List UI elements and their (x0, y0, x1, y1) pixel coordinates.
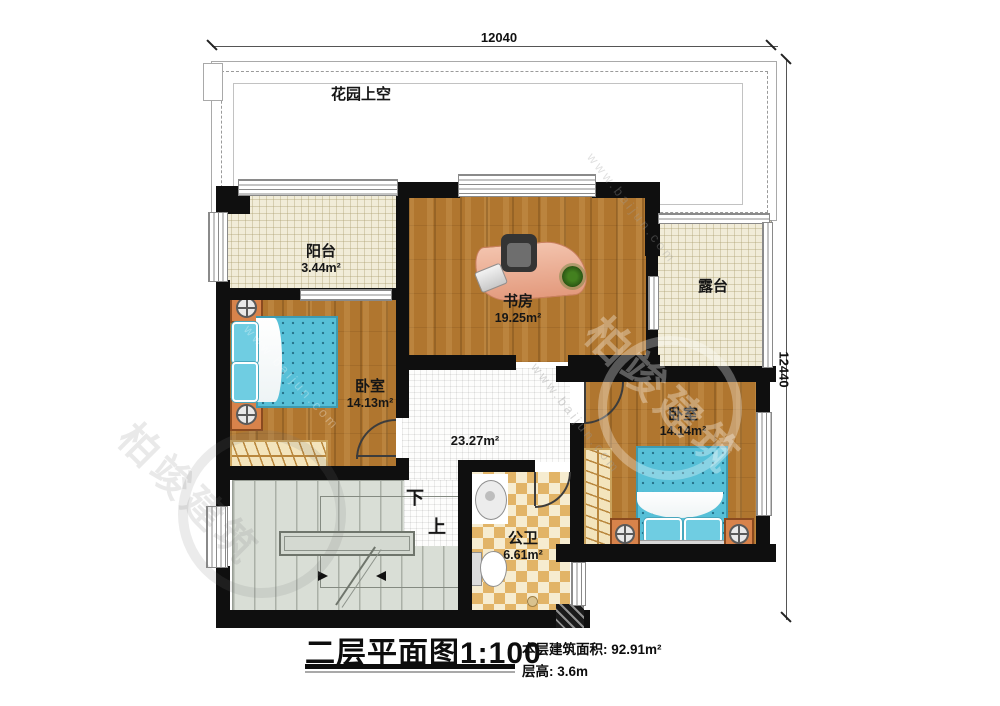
floor-height-label: 层高: 3.6m (522, 660, 588, 680)
stairs-down-label: 下 (402, 488, 428, 509)
door-leaf-bedroom-right (584, 382, 586, 422)
window-study-terrace-door (648, 276, 659, 330)
study-area-label: 19.25m² (473, 311, 563, 325)
bedroom-right-area-label: 14.14m² (640, 424, 726, 438)
bathroom-name-label: 公卫 (488, 530, 558, 547)
bathroom-area-label: 6.61m² (490, 548, 556, 562)
wall-segment (216, 466, 408, 480)
plant-icon (562, 266, 583, 287)
wall-segment (556, 544, 776, 562)
window-bathroom-right (571, 562, 586, 606)
stairs-landing-bar (279, 531, 415, 556)
wall-segment (396, 355, 516, 370)
dim-tick-icon (765, 39, 776, 50)
window-study-top (458, 174, 596, 197)
dimension-right-label: 12440 (777, 336, 792, 404)
stairs-up-label: 上 (424, 517, 450, 538)
dimension-top-label: 12040 (455, 30, 543, 45)
hall-floor-strip (402, 460, 458, 482)
terrace-name-label: 露台 (678, 278, 748, 295)
nightstand-knob-icon (615, 524, 635, 544)
bedroom-left-name-label: 卧室 (330, 378, 410, 395)
study-name-label: 书房 (473, 293, 563, 310)
nightstand-knob-icon (236, 297, 257, 318)
bedroom-right-name-label: 卧室 (645, 406, 721, 423)
wall-segment (756, 514, 770, 562)
window-bedroom-left-balcony (300, 289, 392, 301)
door-leaf-bedroom-left (356, 455, 396, 457)
garden-outline-notch (203, 63, 223, 101)
dimension-top-line (212, 46, 778, 47)
garden-label: 花园上空 (306, 86, 416, 103)
hall-area-label: 23.27m² (435, 434, 515, 449)
wall-segment (756, 382, 770, 412)
plan-title-underline-thin (305, 671, 515, 673)
nightstand-knob-icon (236, 404, 257, 425)
total-area-label: 本层建筑面积: 92.91m² (522, 638, 662, 658)
desk-chair (501, 234, 537, 272)
sink-icon (475, 480, 507, 520)
bed-left-blanket (256, 318, 282, 402)
pillow (232, 322, 258, 364)
pillow (232, 362, 258, 402)
stairs-arrow-left-icon (376, 571, 386, 581)
door-leaf-bathroom (534, 472, 536, 506)
wall-segment (216, 566, 230, 616)
wall-segment (556, 366, 776, 382)
floor-drain-icon (527, 596, 538, 607)
wardrobe-right (584, 448, 612, 550)
stairs-arrow-right-icon (318, 571, 328, 581)
window-balcony-top (238, 179, 398, 196)
wall-segment (458, 460, 472, 616)
bedroom-left-area-label: 14.13m² (325, 396, 415, 410)
nightstand-knob-icon (729, 524, 749, 544)
plan-title-underline (305, 664, 515, 669)
parapet-hatch-wall (556, 604, 584, 628)
window-balcony-left (208, 212, 228, 282)
dim-tick-icon (206, 39, 217, 50)
wall-segment (645, 196, 660, 256)
balcony-area-label: 3.44m² (276, 261, 366, 275)
terrace-top-railing (658, 213, 770, 224)
window-stairwell-left (206, 506, 228, 568)
wall-segment (396, 182, 460, 198)
wall-segment (216, 610, 472, 628)
floor-plan-canvas: 花园上空 下 上 (0, 0, 1000, 706)
balcony-name-label: 阳台 (276, 243, 366, 260)
sink-drain (485, 491, 495, 501)
wall-segment (570, 423, 584, 562)
window-bedroom-right (756, 412, 772, 516)
terrace-right-railing (762, 222, 773, 368)
desk-chair-seat (507, 243, 531, 267)
